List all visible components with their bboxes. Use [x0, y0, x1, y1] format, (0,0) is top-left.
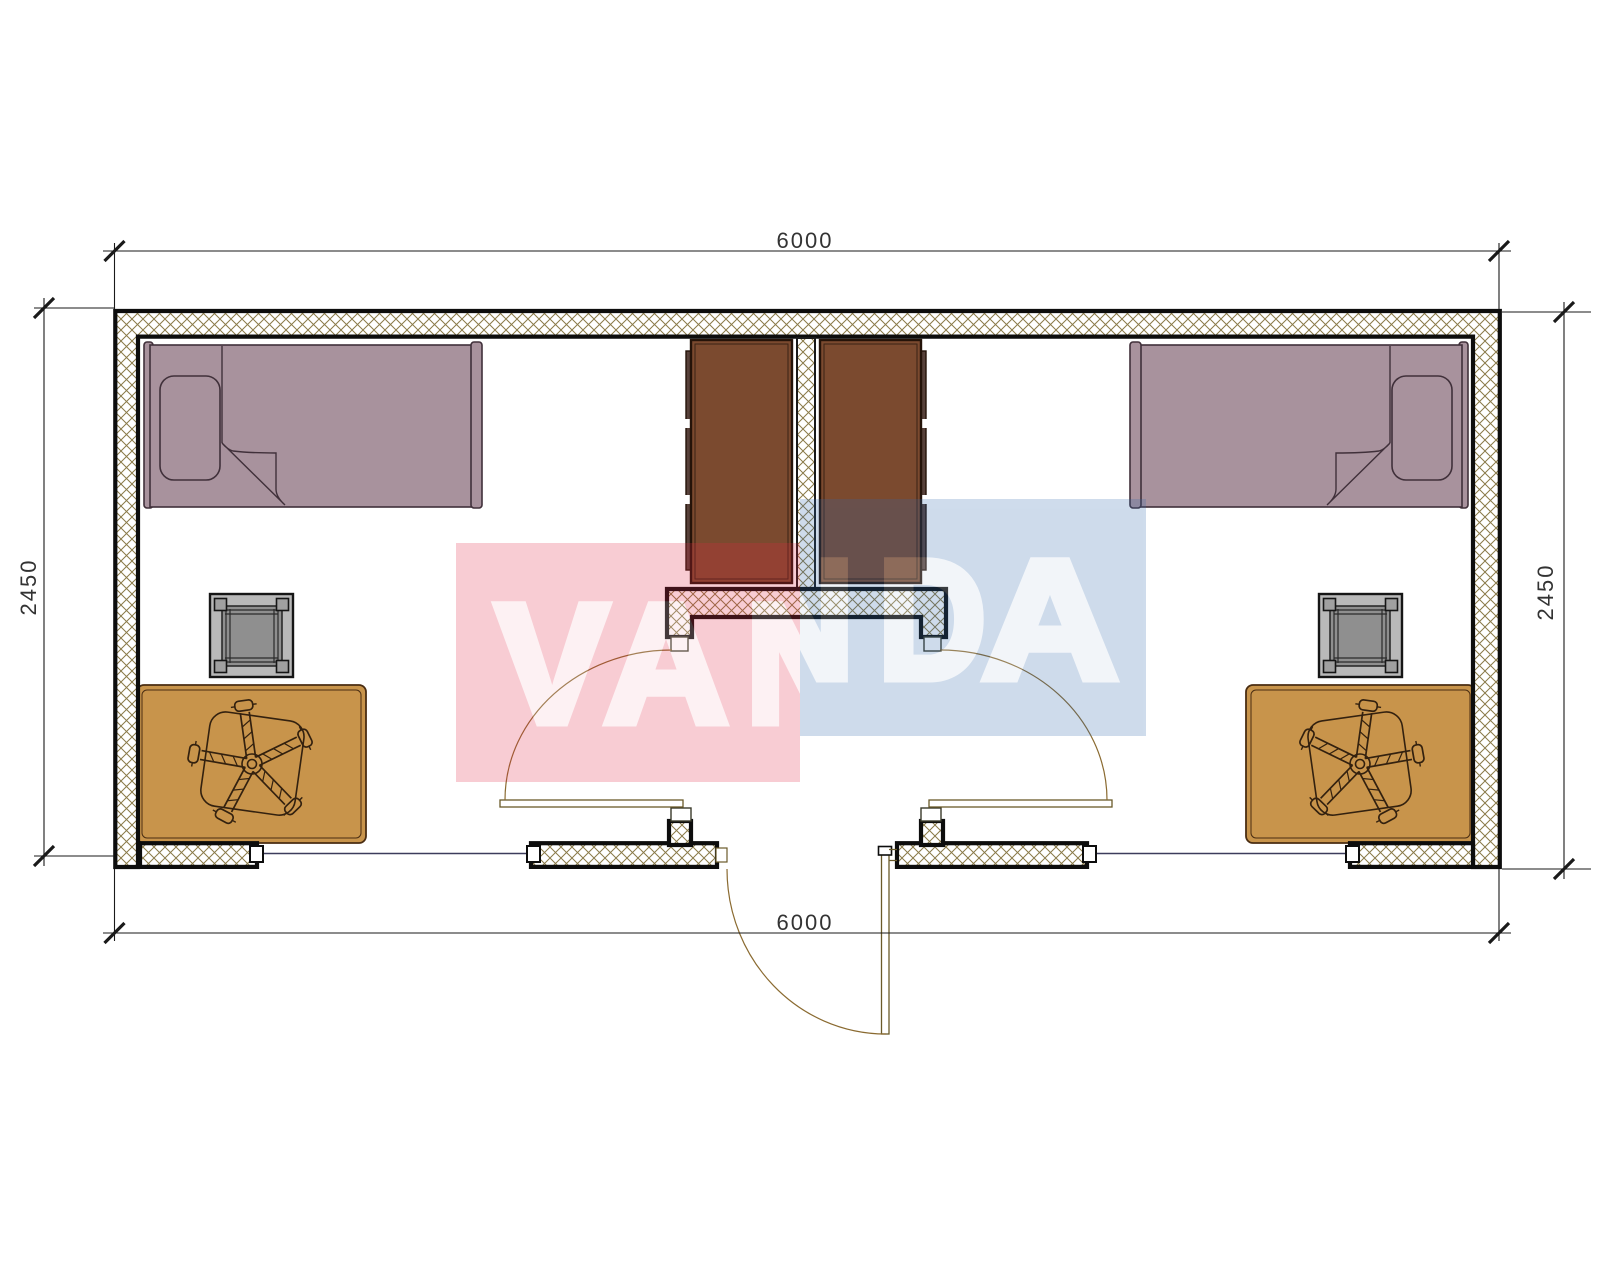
svg-text:6000: 6000 — [777, 228, 834, 253]
svg-text:2450: 2450 — [1533, 564, 1558, 621]
svg-text:2450: 2450 — [16, 559, 41, 616]
svg-text:A: A — [604, 569, 728, 758]
svg-text:6000: 6000 — [777, 910, 834, 935]
svg-text:V: V — [496, 569, 608, 758]
